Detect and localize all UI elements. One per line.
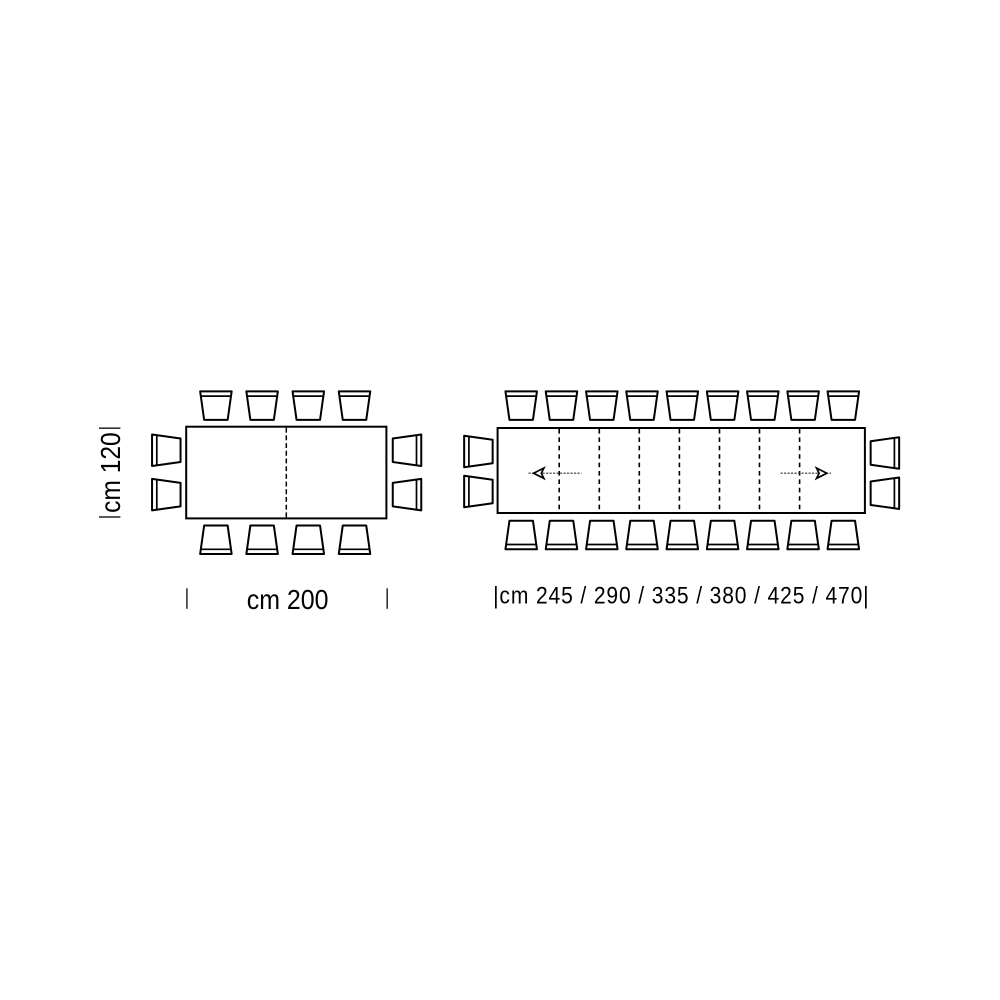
svg-text:cm 120: cm 120 bbox=[95, 432, 127, 513]
svg-text:cm 200: cm 200 bbox=[247, 584, 329, 616]
svg-text:|cm 245 / 290 / 335 / 380 / 42: |cm 245 / 290 / 335 / 380 / 425 / 470| bbox=[493, 582, 869, 609]
